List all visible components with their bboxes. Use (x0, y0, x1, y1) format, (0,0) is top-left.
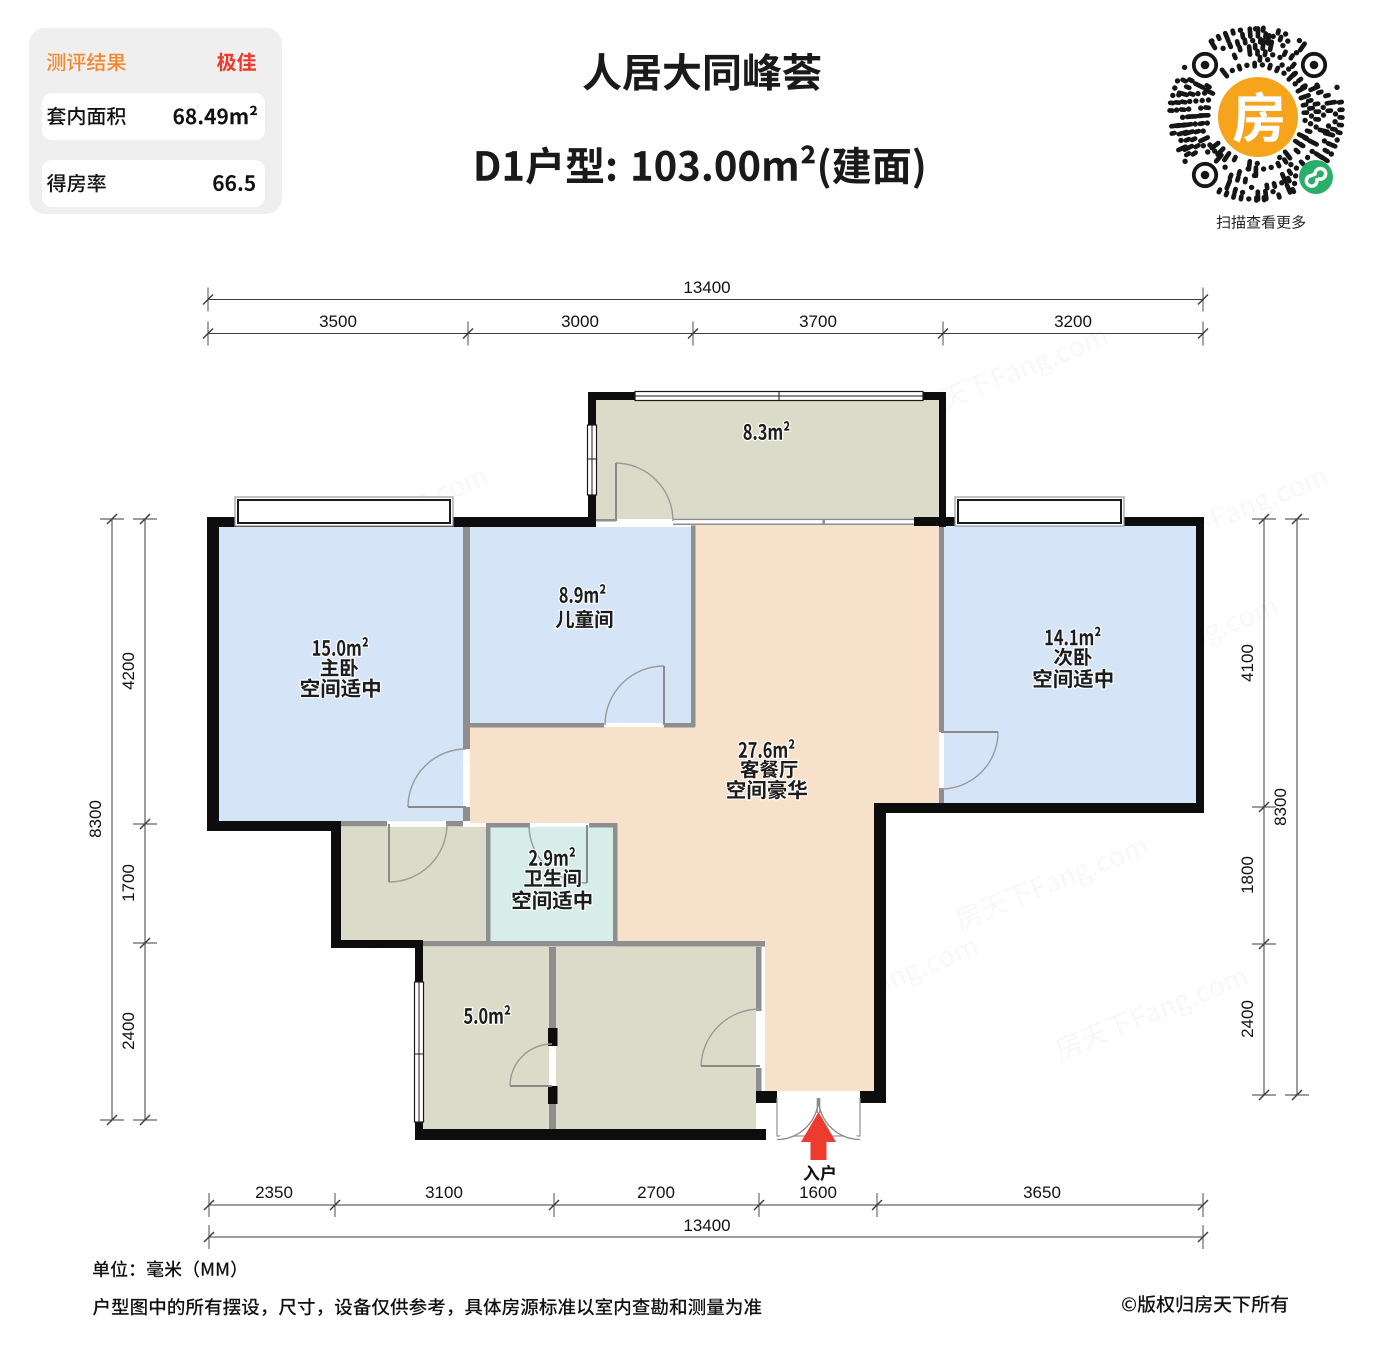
svg-text:1600: 1600 (799, 1183, 837, 1202)
svg-text:3500: 3500 (319, 312, 357, 331)
svg-text:3100: 3100 (425, 1183, 463, 1202)
svg-text:8300: 8300 (1271, 788, 1290, 826)
svg-text:2350: 2350 (255, 1183, 293, 1202)
svg-text:13400: 13400 (683, 1216, 730, 1235)
svg-text:1700: 1700 (119, 864, 138, 902)
svg-text:2400: 2400 (119, 1012, 138, 1050)
svg-text:1800: 1800 (1238, 856, 1257, 894)
svg-text:3700: 3700 (799, 312, 837, 331)
svg-text:13400: 13400 (683, 278, 730, 297)
svg-text:3200: 3200 (1054, 312, 1092, 331)
svg-text:3650: 3650 (1023, 1183, 1061, 1202)
svg-text:3000: 3000 (561, 312, 599, 331)
svg-text:4200: 4200 (119, 652, 138, 690)
svg-text:2400: 2400 (1238, 1000, 1257, 1038)
svg-text:8300: 8300 (86, 800, 105, 838)
svg-text:4100: 4100 (1238, 644, 1257, 682)
svg-text:2700: 2700 (637, 1183, 675, 1202)
